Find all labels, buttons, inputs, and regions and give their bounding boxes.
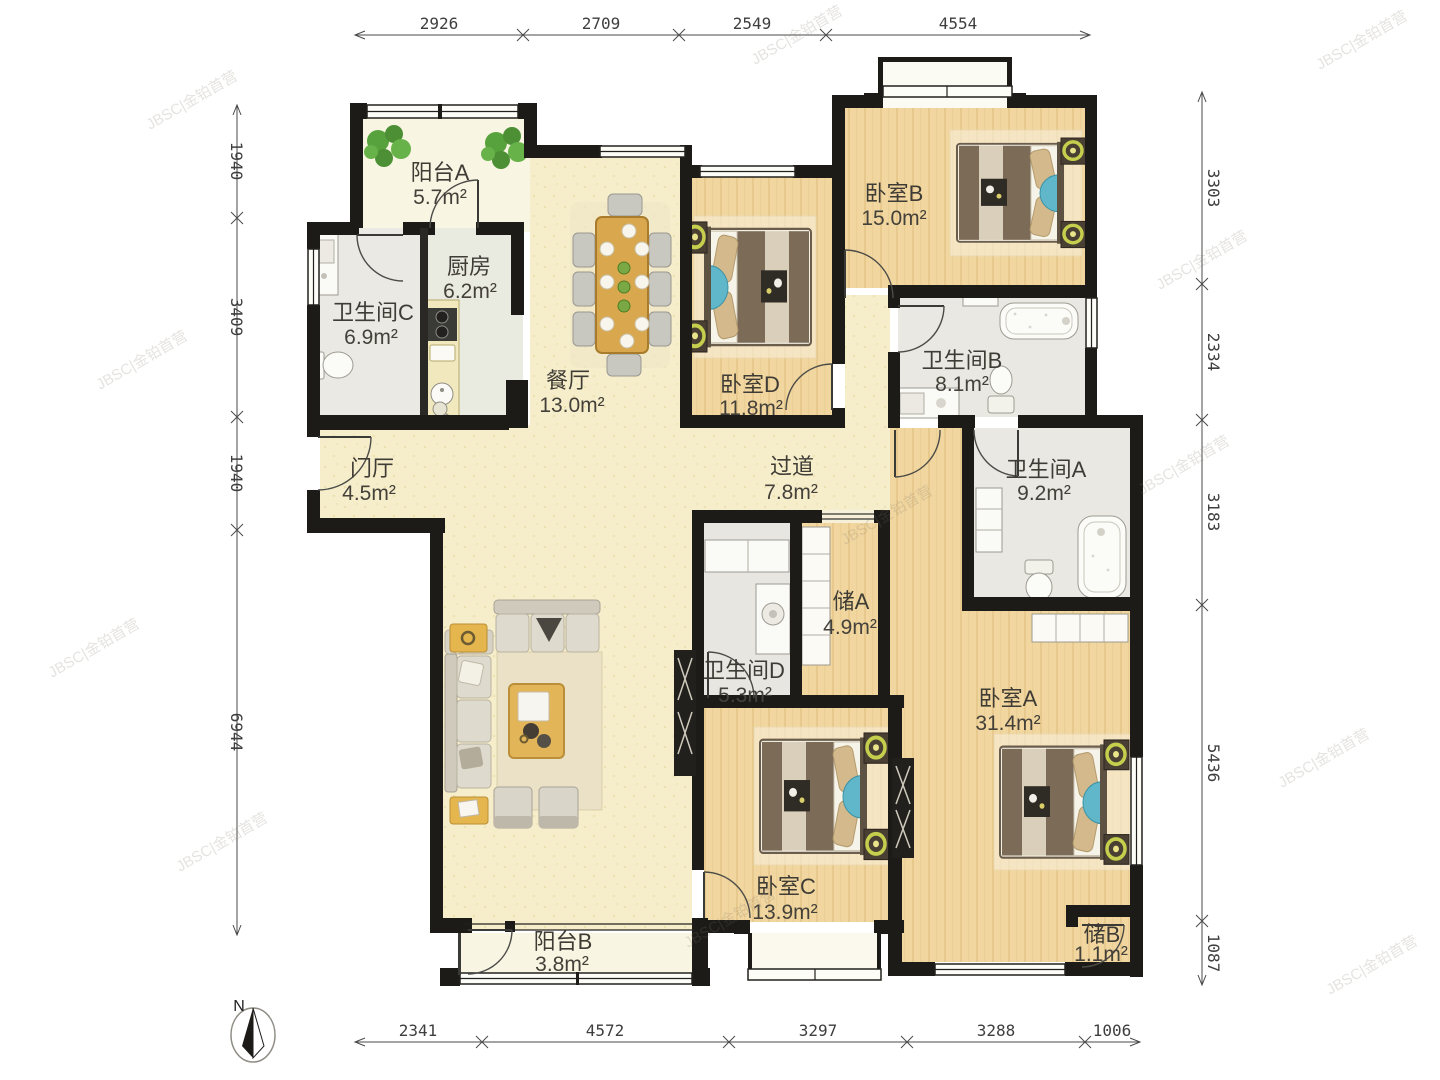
room-label-bath-a: 卫生间A [1006,457,1087,482]
room-label-bath-b: 卫生间B [922,348,1003,373]
dim-bottom-5: 1006 [1093,1021,1132,1040]
room-label-dining: 餐厅 [546,368,590,393]
room-label-balcony-b: 阳台B [534,929,593,954]
dim-left-3: 1940 [227,454,246,493]
dimension-chain-bottom: 2341 4572 3297 3288 1006 [355,1021,1140,1048]
window-bedroom-a-south [935,964,1065,975]
window-bedroom-d [700,166,795,177]
side-table [450,624,487,652]
room-area-storage-a: 4.9m² [823,616,877,639]
dim-left-2: 3409 [227,298,246,337]
dim-top-3: 2549 [733,14,772,33]
room-area-foyer: 4.5m² [342,482,396,505]
room-label-balcony-a: 阳台A [411,160,470,185]
window-dining [600,146,685,157]
room-label-foyer: 门厅 [350,456,394,481]
room-label-kitchen: 厨房 [447,254,491,279]
corridor-branch-floor [845,295,890,428]
room-label-bedroom-b: 卧室B [865,181,924,206]
bedroom-b-bay-floor [882,60,1010,108]
room-area-storage-b: 1.1m² [1074,943,1128,966]
dim-right-1: 3303 [1204,169,1223,208]
room-area-balcony-a: 5.7m² [413,186,467,209]
watermark-text: JBSC|金铂首营 [46,616,143,682]
dim-top-2: 2709 [582,14,621,33]
dim-left-1: 1940 [227,142,246,181]
floor-plan-canvas: 阳台A 5.7m² 厨房 6.2m² 卫生间C 6.9m² 餐厅 13.0m² … [0,0,1440,1080]
watermark-text: JBSC|金铂首营 [1324,933,1421,999]
room-area-bath-c: 6.9m² [344,326,398,349]
dining-set [570,194,671,376]
storage-a-closet [802,527,830,665]
watermark-text: JBSC|金铂首营 [1276,726,1373,792]
room-area-dining: 13.0m² [539,394,604,417]
window-bath-c [308,249,319,305]
room-area-kitchen: 6.2m² [443,280,497,303]
watermark-text: JBSC|金铂首营 [749,3,846,69]
room-area-corridor: 7.8m² [764,481,818,504]
room-area-bath-a: 9.2m² [1017,482,1071,505]
bedroom-a-wardrobe [1032,614,1128,642]
floor-plan-page: 阳台A 5.7m² 厨房 6.2m² 卫生间C 6.9m² 餐厅 13.0m² … [0,0,1440,1080]
watermark-text: JBSC|金铂首营 [144,68,241,134]
room-area-bedroom-d: 11.8m² [719,397,783,420]
watermark-text: JBSC|金铂首营 [174,810,271,876]
dim-right-5: 1087 [1204,934,1223,973]
room-area-bedroom-a: 31.4m² [975,712,1040,735]
compass-north-label: N [233,998,245,1015]
room-area-bedroom-b: 15.0m² [861,207,926,230]
room-label-corridor: 过道 [770,454,814,479]
window-bath-b [1086,298,1097,348]
kitchen-fixtures [426,300,459,420]
dim-right-3: 3183 [1204,493,1223,532]
room-area-balcony-b: 3.8m² [535,953,589,976]
room-area-bath-d: 5.3m² [718,684,772,707]
bedroom-a-entry-floor [890,428,964,612]
dim-top-1: 2926 [420,14,459,33]
window-balcony-a [367,104,518,119]
room-label-bath-c: 卫生间C [332,300,414,325]
dim-bottom-3: 3297 [799,1021,838,1040]
dim-bottom-4: 3288 [977,1021,1016,1040]
room-area-bath-b: 8.1m² [935,373,989,396]
dim-right-2: 2334 [1204,333,1223,372]
watermark-text: JBSC|金铂首营 [1314,8,1411,74]
dimension-chain-right: 3303 2334 3183 5436 1087 [1196,92,1223,985]
room-label-bath-d: 卫生间D [703,658,785,683]
watermark-text: JBSC|金铂首营 [94,328,191,394]
room-label-bedroom-d: 卧室D [720,372,780,397]
dim-right-4: 5436 [1204,744,1223,783]
sliding-door-bedroom-a [892,758,914,858]
dim-bottom-1: 2341 [399,1021,438,1040]
dimension-chain-left: 1940 3409 1940 6944 [227,105,246,935]
compass: N [231,998,275,1062]
sliding-door-bath-d [674,650,696,776]
window-bedroom-a-east [1131,757,1142,865]
room-label-bedroom-a: 卧室A [979,686,1038,711]
dim-left-4: 6944 [227,713,246,752]
watermark-text: JBSC|金铂首营 [1136,433,1233,499]
dimension-chain-top: 2926 2709 2549 4554 [355,14,1090,41]
bedroom-c-bay-floor [751,933,879,971]
dim-top-4: 4554 [939,14,978,33]
room-label-storage-a: 储A [833,589,870,614]
dim-bottom-2: 4572 [586,1021,625,1040]
